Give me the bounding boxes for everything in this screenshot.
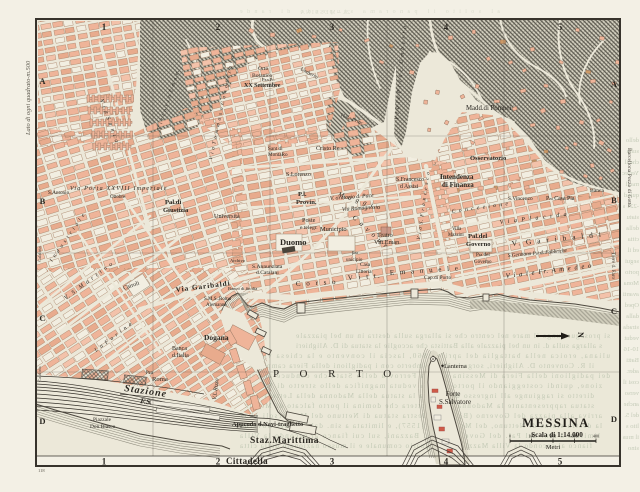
svg-text:Piazzale: Piazzale: [93, 417, 112, 423]
svg-text:200: 200: [550, 434, 556, 439]
svg-text:3: 3: [330, 22, 335, 32]
svg-text:Pal.del: Pal.del: [468, 233, 487, 240]
svg-text:Governo: Governo: [466, 241, 491, 248]
svg-text:S.Salvatore: S.Salvatore: [439, 398, 471, 406]
svg-text:Villa: Villa: [452, 227, 462, 232]
svg-text:Pal.di: Pal.di: [165, 199, 181, 206]
svg-text:Madd.di Pompei: Madd.di Pompei: [466, 105, 511, 112]
svg-text:300: 300: [571, 434, 577, 439]
svg-text:Archivo: Archivo: [230, 258, 246, 263]
svg-text:unicipio: unicipio: [346, 258, 363, 263]
svg-text:d Assisi: d Assisi: [400, 184, 419, 190]
svg-text:1: 1: [102, 22, 107, 32]
svg-text:D: D: [611, 414, 617, 424]
svg-text:F.S.: F.S.: [140, 396, 153, 407]
svg-text:Cap.di Porto: Cap.di Porto: [424, 275, 452, 281]
svg-text:statu: statu: [626, 214, 639, 221]
svg-text:diretto si raggiunge all ingre: diretto si raggiunge all ingresso della …: [239, 392, 594, 400]
svg-text:28. -- M E S S I N A: 28. -- M E S S I N A: [300, 10, 350, 16]
svg-text:5: 5: [558, 457, 563, 467]
svg-text:verso: verso: [624, 390, 639, 397]
svg-text:1: 1: [102, 457, 107, 467]
svg-text:S.Francesco: S.Francesco: [396, 177, 424, 183]
svg-text:della: della: [626, 225, 639, 232]
svg-text:Forte: Forte: [446, 390, 461, 398]
svg-text:Pza Pr.: Pza Pr.: [262, 77, 275, 82]
svg-text:Don.Blasco: Don.Blasco: [90, 424, 116, 430]
svg-text:porto: porto: [624, 269, 639, 276]
svg-text:4: 4: [444, 457, 449, 467]
svg-text:di Finanza: di Finanza: [442, 181, 474, 189]
svg-text:Mazzini: Mazzini: [448, 233, 464, 238]
svg-text:Intendenza: Intendenza: [440, 173, 474, 181]
svg-text:S.M.S..Roma: S.M.S..Roma: [204, 297, 232, 302]
svg-text:Duomo: Duomo: [280, 237, 306, 247]
svg-text:segui: segui: [625, 258, 639, 265]
svg-text:d.Catalani: d.Catalani: [256, 270, 279, 276]
svg-text:✦: ✦: [440, 363, 445, 370]
svg-text:Governo: Governo: [474, 260, 492, 265]
svg-text:Approdo d.Navi-traghetto: Approdo d.Navi-traghetto: [232, 421, 303, 428]
svg-text:e telegr.: e telegr.: [300, 225, 318, 231]
svg-text:statua rappresentante la Madon: statua rappresentante la Madonna della L…: [239, 402, 594, 410]
svg-text:avanti: avanti: [623, 291, 639, 298]
svg-text:del 5.: del 5.: [624, 412, 639, 419]
svg-text:Calabria: Calabria: [37, 246, 42, 262]
svg-text:MontaRo: MontaRo: [268, 152, 288, 158]
svg-text:Municipio: Municipio: [320, 226, 347, 233]
svg-text:3: 3: [330, 457, 335, 467]
svg-text:MESSINA: MESSINA: [522, 416, 589, 430]
svg-text:Ottobre: Ottobre: [110, 195, 126, 200]
svg-text:Pza: Pza: [146, 371, 154, 376]
svg-text:Cristo Re: Cristo Re: [316, 145, 340, 152]
svg-text:Alemanna: Alemanna: [206, 303, 227, 308]
svg-text:N: N: [576, 332, 585, 338]
svg-text:d.Italia: d.Italia: [172, 353, 189, 359]
svg-text:Metri: Metri: [546, 444, 561, 451]
svg-text:A: A: [39, 76, 46, 86]
svg-text:Orto: Orto: [258, 66, 268, 72]
svg-text:400: 400: [593, 434, 599, 439]
svg-text:Barcellona Pozzo di Gotto: Barcellona Pozzo di Gotto: [626, 148, 632, 207]
svg-text:P.l.: P.l.: [298, 191, 307, 198]
svg-text:Università: Università: [214, 213, 240, 220]
svg-text:dello: dello: [625, 137, 639, 144]
svg-text:C: C: [611, 306, 617, 316]
svg-text:2: 2: [216, 22, 221, 32]
svg-text:4: 4: [444, 22, 449, 32]
svg-text:Staz.Marittima: Staz.Marittima: [250, 436, 319, 446]
svg-text:5: 5: [558, 22, 563, 32]
svg-text:Giustizia: Giustizia: [163, 207, 189, 214]
svg-text:D: D: [39, 416, 45, 426]
svg-text:Via Porta XXVIII Imperiale: Via Porta XXVIII Imperiale: [70, 186, 168, 192]
svg-text:Cittadella: Cittadella: [226, 456, 268, 466]
svg-text:Lato di ogni quadrato-m.500: Lato di ogni quadrato-m.500: [25, 60, 32, 136]
svg-text:0: 0: [509, 434, 511, 439]
svg-text:Poste: Poste: [302, 217, 316, 224]
svg-text:P O R T O: P O R T O: [273, 368, 400, 380]
svg-text:ader.: ader.: [626, 368, 639, 375]
svg-text:sino: sino: [627, 445, 639, 452]
svg-text:dalla: dalla: [626, 313, 639, 320]
svg-text:Banca: Banca: [172, 346, 187, 352]
svg-text:100: 100: [528, 434, 534, 439]
svg-text:Pza del: Pza del: [476, 252, 490, 258]
svg-text:Roma: Roma: [152, 376, 168, 383]
svg-text:Torre d. Faro: Torre d. Faro: [610, 252, 616, 280]
svg-text:C: C: [39, 313, 45, 323]
svg-text:Banca: Banca: [590, 188, 604, 194]
svg-text:B: B: [40, 196, 46, 206]
svg-text:S.Vincenzo: S.Vincenzo: [508, 196, 533, 202]
svg-text:B: B: [611, 195, 617, 205]
svg-text:S.Antonio: S.Antonio: [48, 190, 70, 196]
svg-text:il mus: il mus: [622, 434, 639, 441]
svg-text:2: 2: [216, 457, 221, 467]
svg-text:vedut: vedut: [624, 335, 639, 342]
svg-text:XX Settembre: XX Settembre: [244, 83, 281, 89]
svg-text:Osservatorio: Osservatorio: [470, 155, 507, 162]
svg-text:s allarga sulla d. in un bel p: s allarga sulla d. in un bel piazzale al…: [296, 342, 602, 350]
svg-text:strada: strada: [623, 324, 639, 331]
svg-text:Lanterna: Lanterna: [444, 363, 467, 370]
svg-text:Banco di Sicilia: Banco di Sicilia: [228, 286, 257, 291]
svg-text:Batti: Batti: [626, 357, 639, 364]
svg-text:A: A: [611, 79, 618, 89]
svg-text:anche: anche: [624, 401, 639, 408]
svg-text:Mona: Mona: [624, 280, 639, 287]
svg-text:Calabria: Calabria: [37, 366, 42, 382]
svg-text:lito s: lito s: [626, 423, 639, 430]
svg-text:Oped: Oped: [624, 302, 639, 309]
svg-text:118: 118: [38, 468, 45, 473]
svg-text:10-16: 10-16: [623, 346, 639, 353]
svg-text:ed il: ed il: [627, 247, 639, 254]
svg-text:Provin.: Provin.: [296, 199, 317, 206]
svg-text:cosi il: cosi il: [623, 379, 639, 386]
svg-text:S.Lorenzo: S.Lorenzo: [286, 172, 311, 178]
svg-text:citta: citta: [628, 236, 639, 243]
svg-text:Dogana: Dogana: [204, 333, 229, 342]
